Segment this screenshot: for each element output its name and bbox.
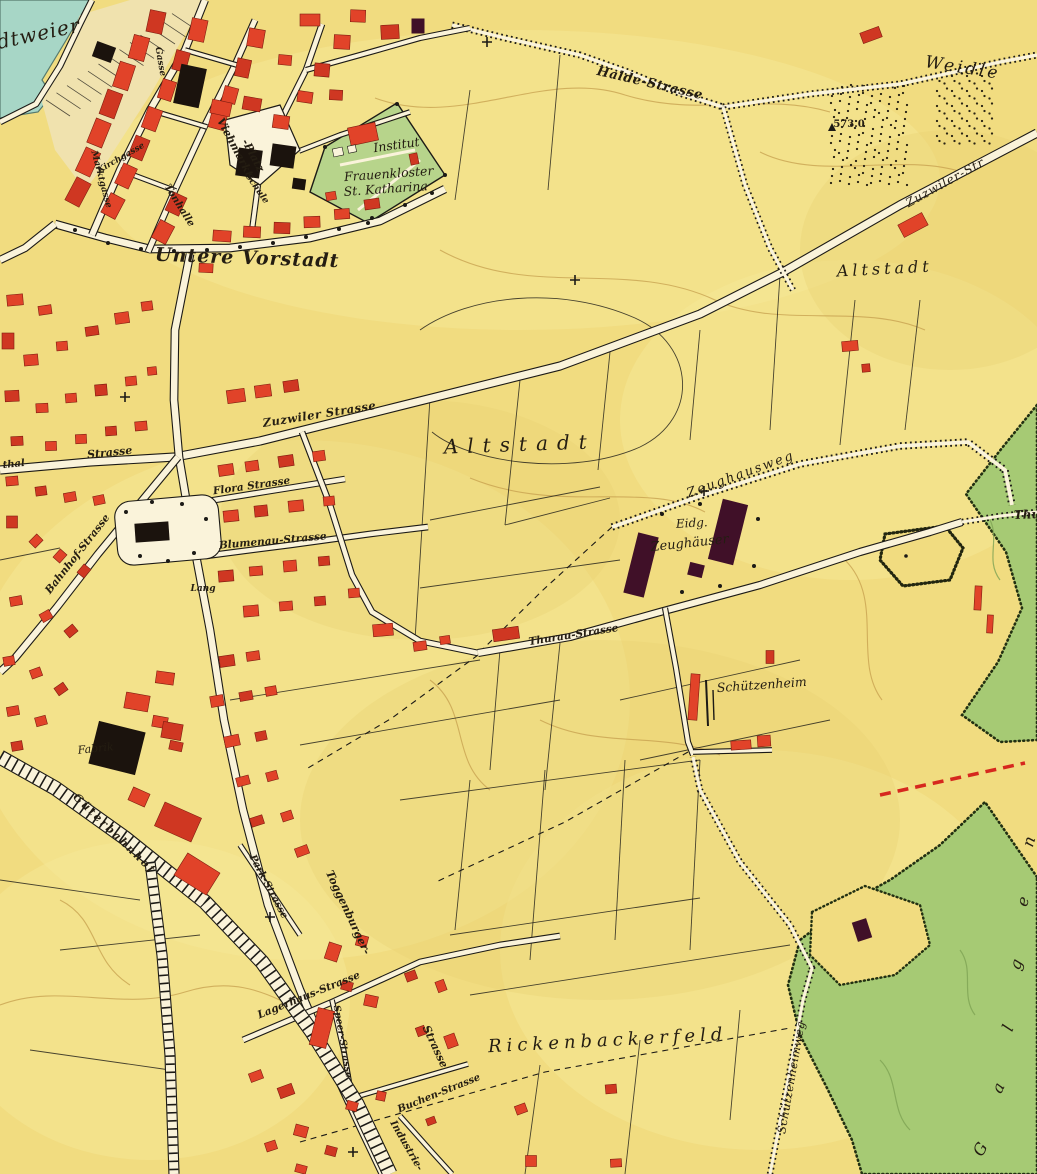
- label-lang: Lang: [190, 584, 216, 594]
- label-spot-height-573: 573.0: [833, 119, 864, 130]
- label-thal-fragment: thal: [2, 458, 25, 471]
- label-eidg: Eidg.: [675, 515, 708, 531]
- label-thurau-forest: Thurau: [1014, 506, 1037, 522]
- screenshot-root: StadtweierUntere VorstadtInstitutFrauenk…: [0, 0, 1037, 1174]
- historical-town-map: StadtweierUntere VorstadtInstitutFrauenk…: [0, 0, 1037, 1174]
